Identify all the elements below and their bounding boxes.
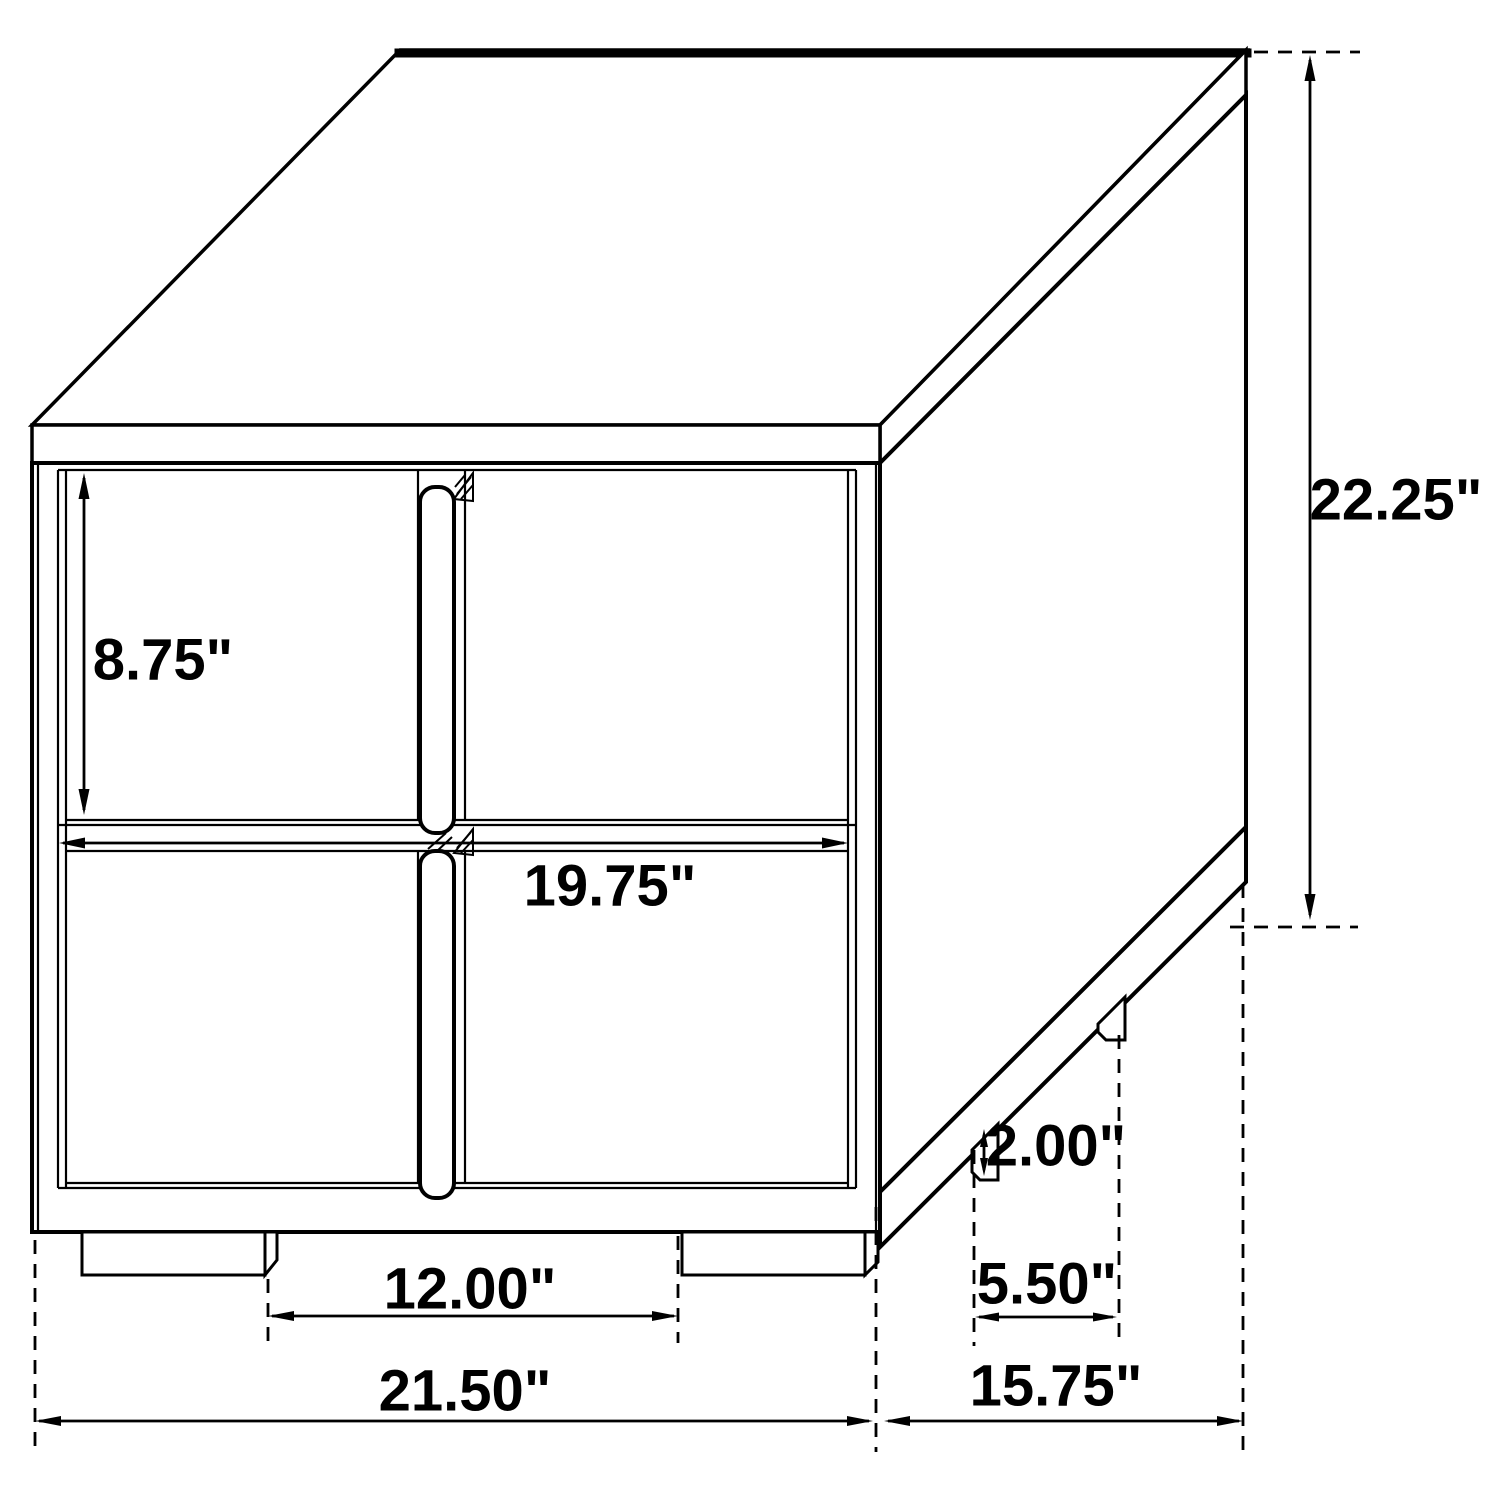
drawer-handle-lower bbox=[420, 851, 454, 1198]
furniture-dimension-diagram: 8.75" 19.75" 22.25" 2.00" bbox=[0, 0, 1500, 1500]
drawer-handle-upper bbox=[420, 487, 454, 833]
top-slab-front-face bbox=[32, 425, 880, 463]
dim-overall-height-label: 22.25" bbox=[1310, 468, 1483, 533]
nightstand-drawing: 8.75" 19.75" 22.25" 2.00" bbox=[0, 0, 1500, 1500]
dim-overall-height: 22.25" bbox=[1230, 52, 1482, 927]
dim-overall-depth-label: 15.75" bbox=[970, 1354, 1143, 1419]
front-foot-right bbox=[682, 1232, 865, 1275]
dim-front-foot-spacing: 12.00" bbox=[268, 1236, 678, 1343]
dim-drawer-width-label: 19.75" bbox=[524, 854, 697, 919]
front-foot-left-side bbox=[265, 1232, 277, 1275]
front-foot-left bbox=[82, 1232, 265, 1275]
dim-side-foot-spacing-label: 5.50" bbox=[977, 1252, 1117, 1317]
dim-foot-height: 2.00" bbox=[980, 1114, 1126, 1179]
dim-front-foot-spacing-label: 12.00" bbox=[384, 1257, 557, 1322]
dim-foot-height-label: 2.00" bbox=[986, 1114, 1126, 1179]
dim-drawer-face-height-label: 8.75" bbox=[93, 628, 233, 693]
dim-overall-width-label: 21.50" bbox=[379, 1359, 552, 1424]
